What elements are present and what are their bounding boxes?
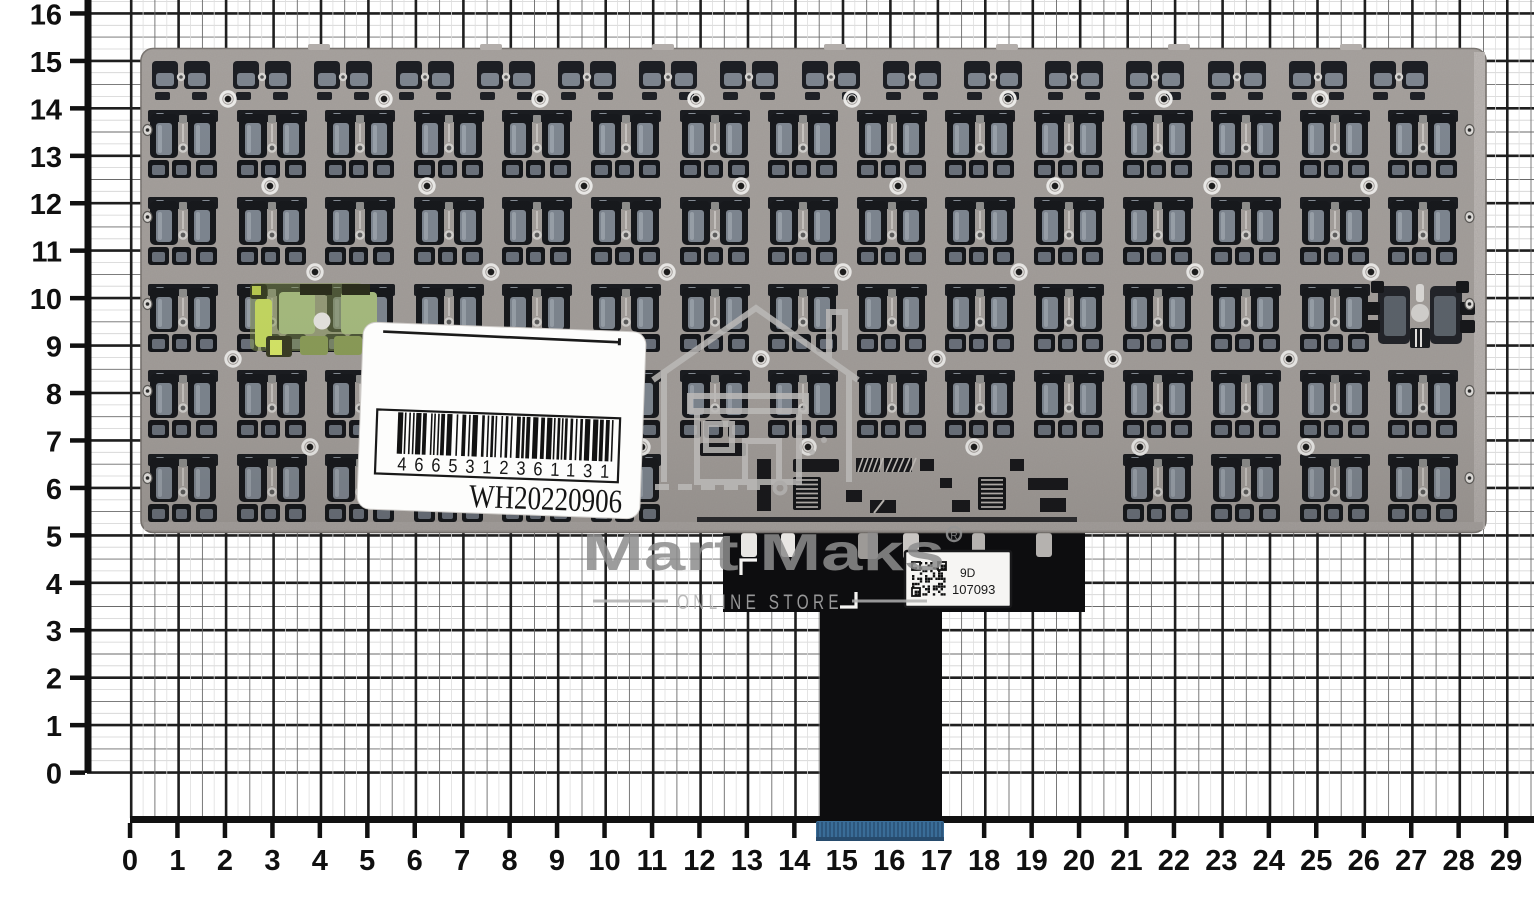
svg-text:0: 0 <box>46 759 62 791</box>
svg-text:13: 13 <box>731 845 763 877</box>
svg-text:R: R <box>950 531 957 542</box>
svg-text:ONLINE STORE: ONLINE STORE <box>677 591 843 614</box>
svg-text:10: 10 <box>588 845 620 877</box>
svg-text:12: 12 <box>683 845 715 877</box>
svg-text:8: 8 <box>502 845 518 877</box>
svg-text:5: 5 <box>46 521 62 553</box>
svg-text:1: 1 <box>46 711 62 743</box>
svg-text:5: 5 <box>359 845 375 877</box>
svg-text:20: 20 <box>1063 845 1095 877</box>
svg-text:16: 16 <box>30 0 62 31</box>
svg-text:2: 2 <box>217 845 233 877</box>
svg-text:13: 13 <box>30 142 62 174</box>
svg-text:9: 9 <box>46 332 62 364</box>
svg-text:21: 21 <box>1110 845 1142 877</box>
svg-text:29: 29 <box>1490 845 1522 877</box>
svg-text:7: 7 <box>46 426 62 458</box>
svg-text:6: 6 <box>46 474 62 506</box>
svg-text:14: 14 <box>30 94 62 126</box>
svg-text:11: 11 <box>31 237 62 269</box>
svg-text:14: 14 <box>778 845 810 877</box>
svg-text:12: 12 <box>30 189 62 221</box>
svg-text:4: 4 <box>312 845 328 877</box>
svg-text:4: 4 <box>46 569 62 601</box>
svg-text:24: 24 <box>1253 845 1285 877</box>
svg-text:2: 2 <box>46 664 62 696</box>
svg-text:19: 19 <box>1015 845 1047 877</box>
svg-text:7: 7 <box>454 845 470 877</box>
svg-text:8: 8 <box>46 379 62 411</box>
svg-text:10: 10 <box>30 284 62 316</box>
svg-text:0: 0 <box>122 845 138 877</box>
svg-text:3: 3 <box>264 845 280 877</box>
svg-text:3: 3 <box>46 616 62 648</box>
svg-text:27: 27 <box>1395 845 1427 877</box>
svg-text:9D: 9D <box>960 566 976 580</box>
svg-text:15: 15 <box>826 845 858 877</box>
svg-text:11: 11 <box>637 845 668 877</box>
svg-text:28: 28 <box>1442 845 1474 877</box>
svg-text:25: 25 <box>1300 845 1332 877</box>
svg-text:22: 22 <box>1158 845 1190 877</box>
svg-text:26: 26 <box>1348 845 1380 877</box>
svg-text:15: 15 <box>30 47 62 79</box>
svg-text:107093: 107093 <box>952 582 995 597</box>
svg-text:18: 18 <box>968 845 1000 877</box>
svg-text:23: 23 <box>1205 845 1237 877</box>
svg-text:1: 1 <box>169 845 185 877</box>
svg-text:9: 9 <box>549 845 565 877</box>
svg-text:17: 17 <box>921 845 953 877</box>
svg-text:WH20220906: WH20220906 <box>469 479 623 521</box>
svg-text:6: 6 <box>407 845 423 877</box>
svg-text:16: 16 <box>873 845 905 877</box>
svg-text:Mart Maks: Mart Maks <box>582 524 945 582</box>
